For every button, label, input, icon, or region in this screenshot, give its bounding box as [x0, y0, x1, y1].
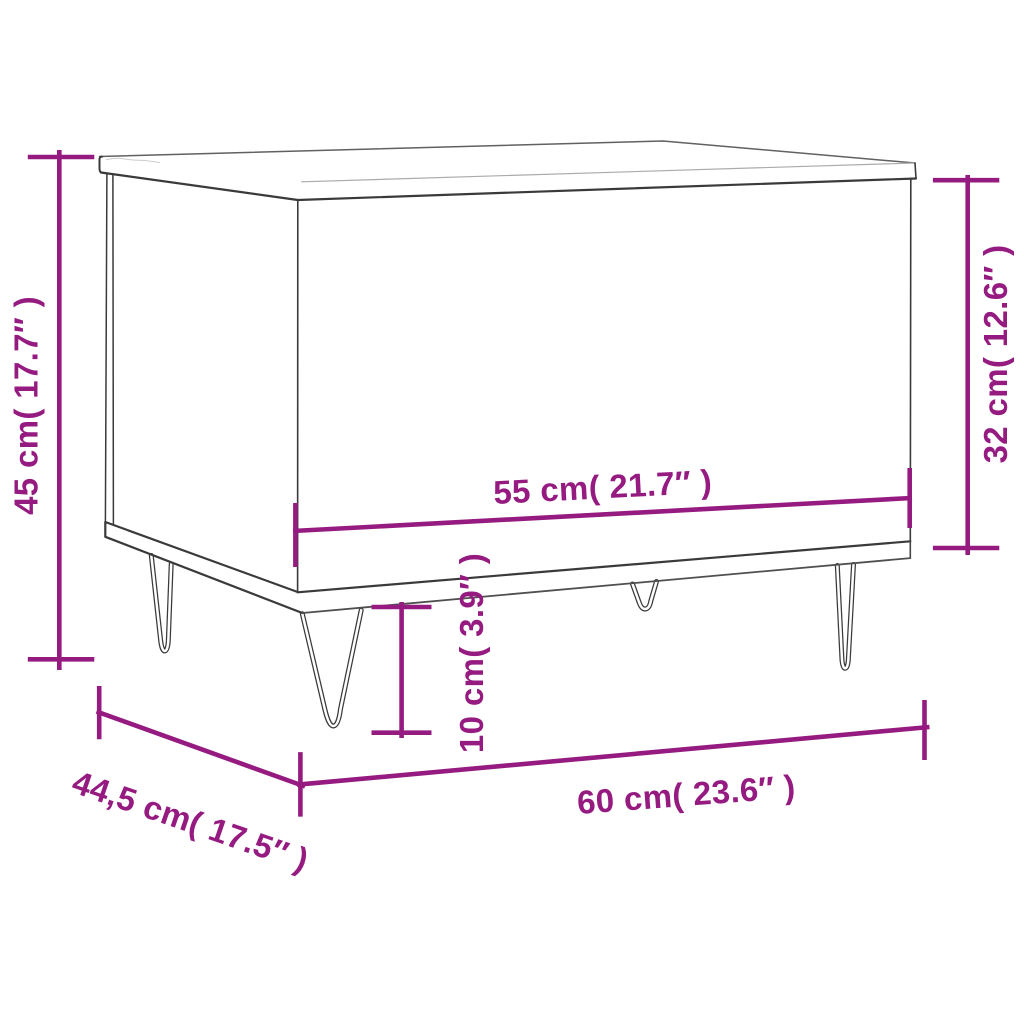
- svg-text:32 cm( 12.6″ ): 32 cm( 12.6″ ): [977, 245, 1014, 464]
- svg-text:45 cm( 17.7″ ): 45 cm( 17.7″ ): [8, 296, 45, 515]
- svg-text:55 cm( 21.7″ ): 55 cm( 21.7″ ): [492, 463, 712, 511]
- svg-text:60 cm( 23.6″ ): 60 cm( 23.6″ ): [576, 768, 797, 821]
- svg-text:44,5 cm( 17.5″ ): 44,5 cm( 17.5″ ): [68, 763, 314, 878]
- svg-text:10 cm( 3.9″ ): 10 cm( 3.9″ ): [453, 553, 490, 753]
